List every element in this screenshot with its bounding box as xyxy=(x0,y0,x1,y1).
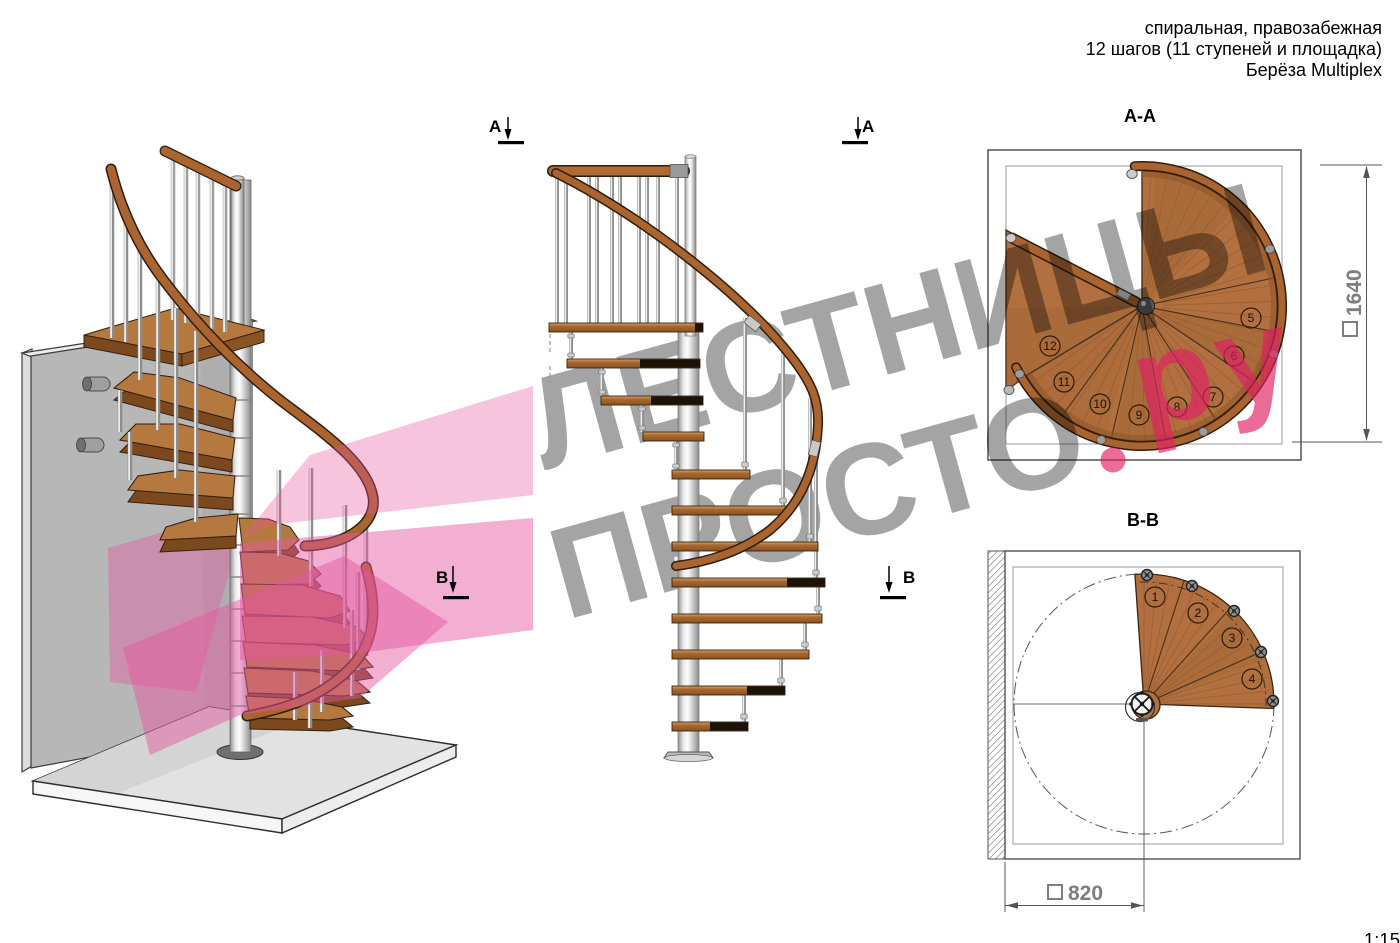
svg-text:1: 1 xyxy=(1152,590,1159,604)
svg-text:A-A: A-A xyxy=(1124,106,1156,126)
svg-text:820: 820 xyxy=(1068,882,1103,905)
svg-text:2: 2 xyxy=(1195,606,1202,620)
svg-text:спиральная, правозабежная: спиральная, правозабежная xyxy=(1145,18,1382,38)
svg-text:A: A xyxy=(862,117,874,136)
svg-text:3: 3 xyxy=(1229,631,1236,645)
svg-text:B-B: B-B xyxy=(1127,510,1159,530)
svg-text:B: B xyxy=(436,568,448,587)
svg-text:1:15: 1:15 xyxy=(1364,929,1400,943)
svg-text:1640: 1640 xyxy=(1343,269,1366,316)
svg-text:12 шагов (11 ступеней и площад: 12 шагов (11 ступеней и площадка) xyxy=(1086,39,1382,59)
svg-text:10: 10 xyxy=(1093,397,1107,411)
svg-text:A: A xyxy=(489,117,501,136)
svg-text:B: B xyxy=(903,568,915,587)
svg-text:4: 4 xyxy=(1249,672,1256,686)
svg-text:Берёза Multiplex: Берёза Multiplex xyxy=(1246,60,1382,80)
